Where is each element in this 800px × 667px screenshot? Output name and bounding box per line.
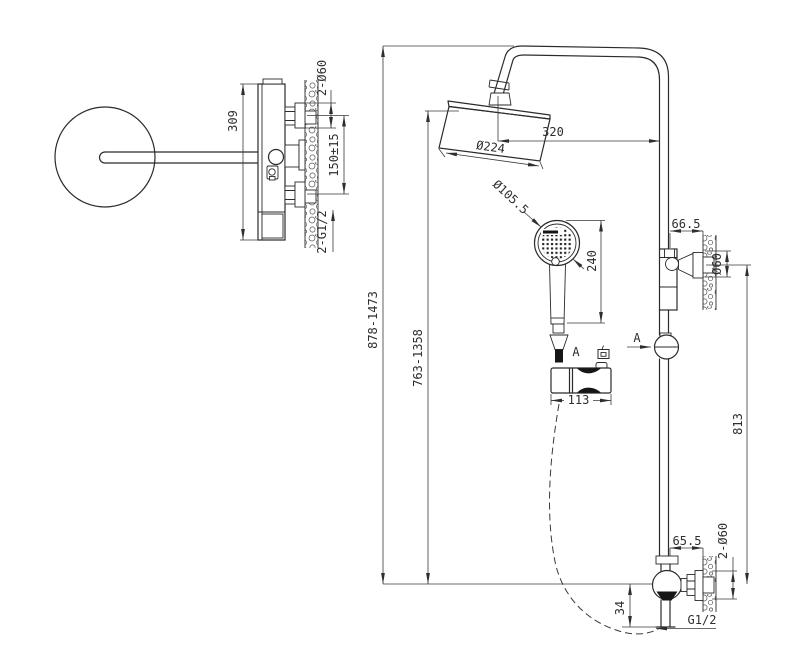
inlet-fitting-lower (285, 182, 305, 207)
dim-handshower-length-label: 240 (585, 250, 599, 272)
valve-escutcheon (695, 571, 703, 601)
dim-overall-height-label: 878-1473 (366, 291, 380, 349)
arm-pivot (269, 150, 284, 165)
dim-arm-reach-label: 320 (542, 125, 564, 139)
dim-upper-bracket-diameter-label: Ø60 (710, 253, 724, 275)
dim-inlet-thread-label: 2-G1/2 (315, 210, 329, 253)
dim-valve-escutcheons-label: 2-Ø60 (716, 523, 730, 559)
hand-shower-handle (550, 264, 566, 325)
section-arrow-label: A (633, 331, 641, 345)
dim-outlet-drop-label: 34 (613, 601, 627, 615)
head-connector (489, 93, 511, 105)
bracket-ball (666, 258, 679, 271)
detail-label-a: A (572, 345, 580, 359)
hose-tip (555, 350, 563, 363)
valve-handle-nut (687, 575, 695, 596)
handle-neck (553, 324, 564, 333)
dim-bracket-width-label: 113 (568, 393, 590, 407)
valve-body-side (258, 79, 285, 240)
valve-collar (656, 556, 678, 564)
dim-outlet-thread-label: G1/2 (688, 613, 717, 627)
valve-handle-neck (681, 579, 687, 592)
dim-handshower-height-label: 763-1358 (411, 329, 425, 387)
inlet-fitting-upper (285, 103, 305, 128)
dim-inlet-spacing-label: 150±15 (327, 133, 341, 176)
drawing-background (0, 0, 800, 667)
dim-body-height-label: 309 (226, 110, 240, 132)
bracket-flange (693, 253, 703, 279)
dim-wall-holes-label: 2-Ø60 (315, 60, 329, 96)
wall-hole-valve (703, 577, 714, 593)
dim-bracket-to-valve-label: 813 (731, 413, 745, 435)
dim-valve-offset-label: 65.5 (673, 534, 702, 548)
technical-drawing: 309 2-Ø60 150±15 2-G1/2 (0, 0, 800, 667)
wall-hole-upper (305, 111, 316, 124)
wall-hole-lower (305, 190, 316, 203)
dim-upper-bracket-offset-label: 66.5 (672, 217, 701, 231)
